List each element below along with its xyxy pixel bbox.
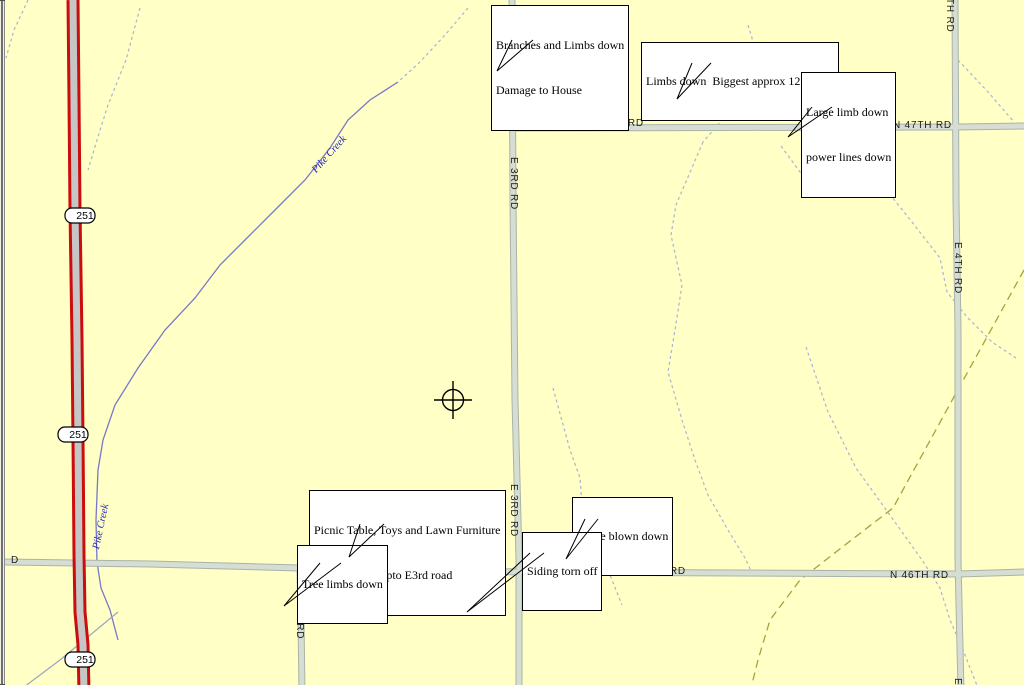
callout-tree-limbs[interactable]: Tree limbs down (297, 545, 388, 624)
route-shield-251: 251 (70, 210, 100, 222)
road-label-e3rd: E 3RD RD (508, 157, 519, 210)
road-label-n47th: N 47TH RD (893, 120, 952, 131)
callout-text: Damage to House (496, 83, 624, 98)
road-label-n46th: N 46TH RD (890, 570, 949, 581)
road-label-e4th: E 4TH RD (952, 242, 963, 294)
callout-siding-torn[interactable]: Siding torn off (522, 532, 602, 611)
map-window: 251 251 251 N 47TH RD N 47TH RD E 3RD RD… (0, 0, 1024, 692)
road-label-e4th-partial: TH RD (944, 0, 955, 33)
window-bottom-border (0, 684, 1024, 692)
route-shield-251: 251 (70, 654, 100, 666)
callout-text: Tree limbs down (302, 577, 383, 592)
map-canvas[interactable]: 251 251 251 N 47TH RD N 47TH RD E 3RD RD… (5, 0, 1024, 685)
callout-text: Branches and Limbs down (496, 38, 624, 53)
callout-large-limb-powerlines[interactable]: Large limb down power lines down (801, 72, 896, 198)
route-shield-251: 251 (63, 429, 93, 441)
callout-text: Siding torn off (527, 564, 597, 579)
callout-branches-limbs[interactable]: Branches and Limbs down Damage to House (491, 5, 629, 131)
callout-text: Picnic Table, Toys and Lawn Furniture (314, 523, 501, 538)
road-label-e4th-partial: E (952, 678, 963, 685)
road-label-partial-d: D (11, 555, 19, 566)
callout-text: power lines down (806, 150, 891, 165)
callout-text: Large limb down (806, 105, 891, 120)
road-label-e3rd: E 3RD RD (508, 484, 519, 537)
